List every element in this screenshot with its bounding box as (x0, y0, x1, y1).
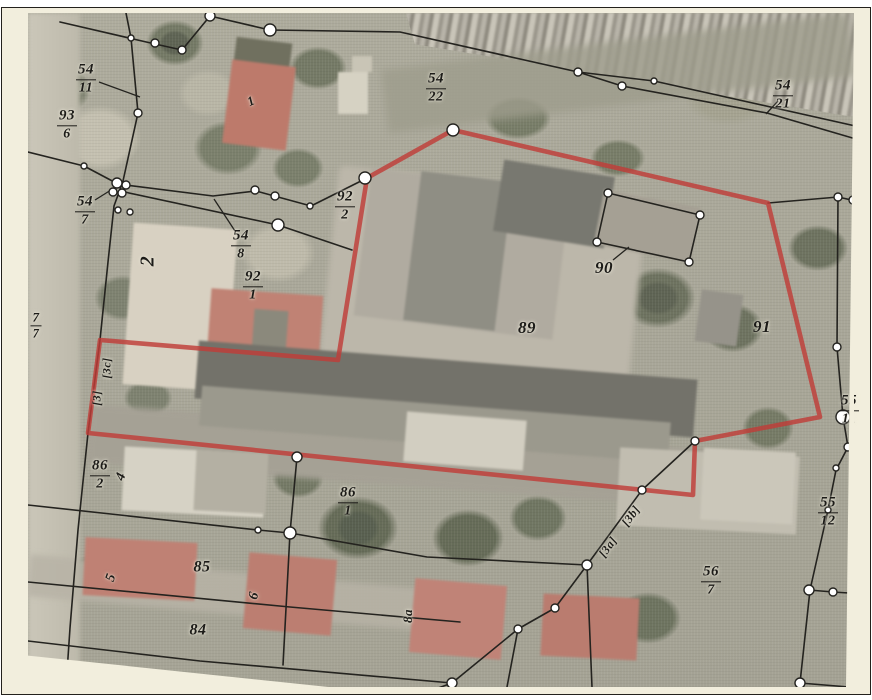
parcel-label-56-7: 567 (701, 564, 721, 597)
parcel-number-denominator: 11 (76, 80, 96, 96)
parcel-number-numerator: 54 (75, 194, 95, 212)
parcel-label-2: 2 (138, 256, 159, 267)
parcel-number-denominator: 11 (839, 411, 859, 427)
parcel-label-92-1: 921 (243, 269, 263, 302)
parcel-label-text: 8a (400, 609, 415, 623)
parcel-number-numerator: 54 (773, 78, 793, 96)
parcel-number-numerator: 92 (335, 189, 355, 207)
parcel-number-numerator: 54 (76, 62, 96, 80)
parcel-label-text: 91 (753, 317, 771, 336)
parcel-number-denominator: 7 (701, 582, 721, 598)
parcel-number-numerator: 86 (90, 458, 110, 476)
scanned-map-page: 5411936547548921922542254217755115512567… (0, 0, 872, 700)
parcel-label-text: 1 (245, 92, 258, 109)
parcel-number-denominator: 2 (90, 476, 110, 492)
parcel-label-8a: 8a (401, 609, 415, 623)
parcel-label-55-11: 5511 (839, 393, 859, 426)
parcel-label-text: [3b] (619, 503, 643, 529)
parcel-label-86-1: 861 (338, 485, 358, 518)
parcel-number-denominator: 21 (773, 96, 793, 112)
parcel-label-7-7: 77 (31, 310, 42, 339)
parcel-label-3: [3] (91, 390, 104, 406)
parcel-label-93-6: 936 (57, 108, 77, 141)
parcel-label-89: 89 (518, 319, 536, 337)
parcel-label-3b: [3b] (619, 503, 642, 528)
parcel-label-text: 90 (595, 258, 613, 277)
parcel-label-text: [3] (90, 390, 104, 406)
parcel-number-numerator: 7 (31, 310, 42, 326)
parcel-labels-layer: 5411936547548921922542254217755115512567… (0, 0, 872, 700)
parcel-label-54-21: 5421 (773, 78, 793, 111)
parcel-number-numerator: 55 (839, 393, 859, 411)
parcel-label-54-11: 5411 (76, 62, 96, 95)
parcel-number-denominator: 2 (335, 207, 355, 223)
parcel-number-denominator: 7 (31, 326, 42, 340)
parcel-label-54-7: 547 (75, 194, 95, 227)
parcel-label-text: 85 (194, 559, 211, 576)
parcel-number-denominator: 22 (426, 89, 446, 105)
parcel-label-3a: [3a] (596, 534, 619, 559)
parcel-label-1: 1 (245, 93, 257, 108)
parcel-label-54-22: 5422 (426, 71, 446, 104)
parcel-number-denominator: 12 (818, 513, 838, 529)
parcel-number-numerator: 92 (243, 269, 263, 287)
parcel-number-numerator: 55 (818, 495, 838, 513)
parcel-number-denominator: 8 (231, 246, 251, 262)
parcel-label-90: 90 (595, 259, 613, 277)
parcel-label-text: [3a] (596, 534, 620, 560)
parcel-number-denominator: 1 (338, 503, 358, 519)
parcel-label-text: 5 (103, 572, 120, 584)
parcel-label-4: 4 (114, 471, 130, 483)
parcel-label-3c: [3c] (101, 357, 114, 378)
parcel-number-numerator: 54 (426, 71, 446, 89)
parcel-label-text: 84 (190, 622, 207, 639)
parcel-number-denominator: 6 (57, 126, 77, 142)
parcel-label-85: 85 (194, 560, 211, 577)
parcel-number-numerator: 93 (57, 108, 77, 126)
parcel-label-92-2: 922 (335, 189, 355, 222)
parcel-label-text: 89 (518, 318, 536, 337)
parcel-label-6: 6 (247, 590, 263, 601)
parcel-number-numerator: 86 (338, 485, 358, 503)
parcel-label-text: [3c] (100, 357, 114, 378)
parcel-number-denominator: 1 (243, 287, 263, 303)
parcel-label-86-2: 862 (90, 458, 110, 491)
parcel-label-text: 4 (113, 471, 130, 483)
parcel-number-numerator: 56 (701, 564, 721, 582)
parcel-label-91: 91 (753, 318, 771, 336)
parcel-number-numerator: 54 (231, 228, 251, 246)
parcel-label-55-12: 5512 (818, 495, 838, 528)
parcel-label-5: 5 (104, 572, 120, 584)
parcel-label-text: 6 (246, 590, 262, 601)
parcel-number-denominator: 7 (75, 212, 95, 228)
parcel-label-text: 2 (137, 256, 159, 267)
parcel-label-84: 84 (190, 623, 207, 640)
parcel-label-54-8: 548 (231, 228, 251, 261)
